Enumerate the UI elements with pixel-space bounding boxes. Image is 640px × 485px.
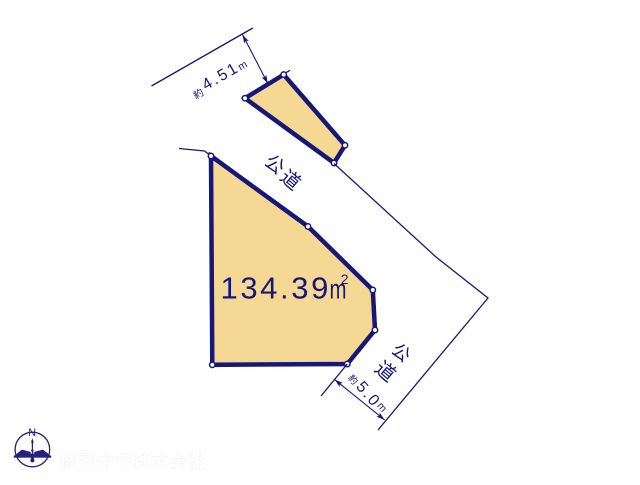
svg-text:2: 2 bbox=[341, 271, 349, 287]
svg-text:N: N bbox=[28, 427, 36, 439]
svg-text:134.39: 134.39 bbox=[221, 271, 331, 306]
